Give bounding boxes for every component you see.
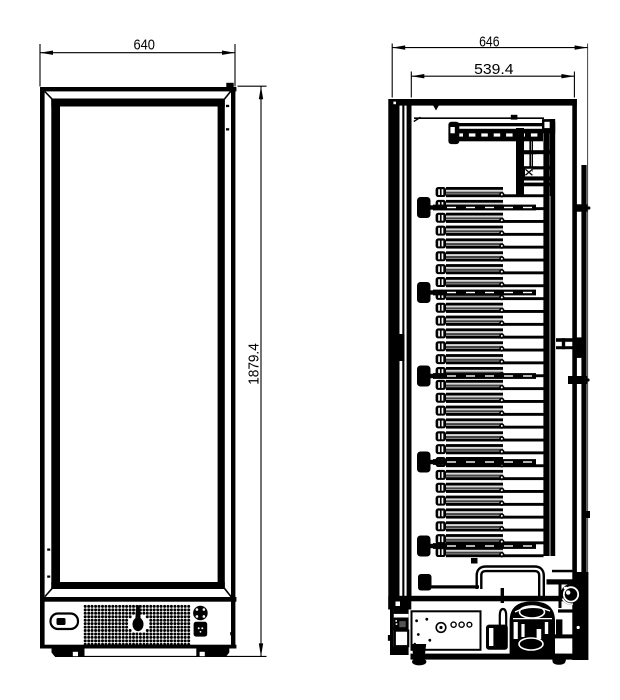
svg-text:539.4: 539.4 — [474, 61, 513, 78]
svg-text:640: 640 — [133, 37, 155, 53]
svg-text:1879.4: 1879.4 — [246, 343, 263, 385]
svg-text:646: 646 — [479, 34, 499, 51]
